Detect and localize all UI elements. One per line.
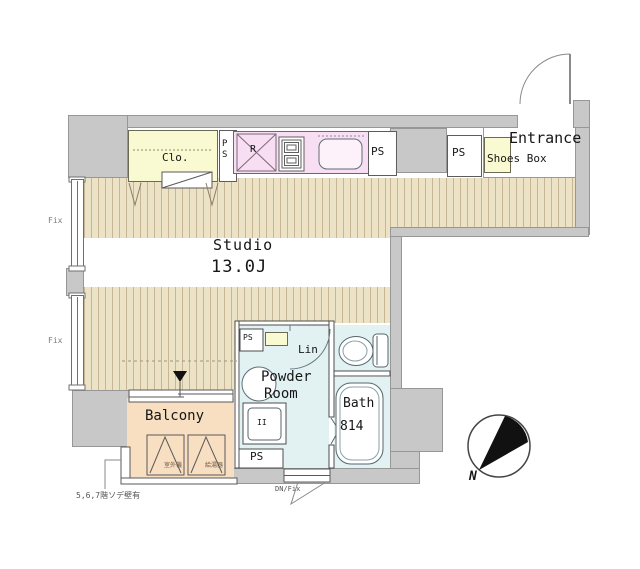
north-label: N [469,470,477,484]
studio-area-label: 13.0J [211,258,267,277]
floor-plan-graphics [0,0,640,569]
ps-label-entrance: PS [452,147,465,159]
closet-sliding-door-icon [162,172,212,188]
washer-mark-label: II [257,419,267,428]
balcony-sliding-window-icon [129,390,233,402]
fix-window-upper-icon [69,177,85,271]
balcony-side-wall [121,447,130,478]
fix-window-lower-icon [69,293,85,390]
fix-label-lower: Fix [48,337,62,346]
floor-plan: Studio 13.0J Clo. PS R PS PS Entrance Sh… [0,0,640,569]
bath-label: Bath [343,397,374,411]
powder-room-label-line1: Powder [261,370,312,385]
toilet-icon [339,334,388,367]
balcony-label: Balcony [145,409,204,424]
refrigerator-space-icon [237,134,276,171]
powder-room-label-line2: Room [264,387,298,402]
stove-icon [279,137,304,171]
closet-label: Clo. [162,152,189,164]
shoes-box-label: Shoes Box [487,153,547,165]
entrance-door-icon [520,54,570,104]
balcony-bottom-rail [121,478,237,484]
dn-fix-label: DN/Fix [275,486,300,494]
wall-note-label: 5,6,7階ソデ壁有 [76,492,140,501]
kitchen-sink-icon [318,136,364,169]
fix-label-upper: Fix [48,217,62,226]
ps-label-kitchen-left: PS [222,139,231,161]
studio-name-label: Studio [213,237,273,254]
bath-size-label: 814 [340,420,363,434]
ps-label-kitchen-right: PS [371,146,384,158]
entrance-label: Entrance [509,130,581,147]
ps-label-powder-top: PS [243,334,253,343]
wall-note-leader-line [105,460,121,489]
outdoor-unit-label: 室外機 [152,463,182,470]
water-heater-label: 給湯器 [193,463,223,470]
fridge-label: R [250,144,256,155]
ps-label-powder-bottom: PS [250,451,263,463]
compass-icon [468,415,530,477]
linen-label: Lin [298,344,318,356]
